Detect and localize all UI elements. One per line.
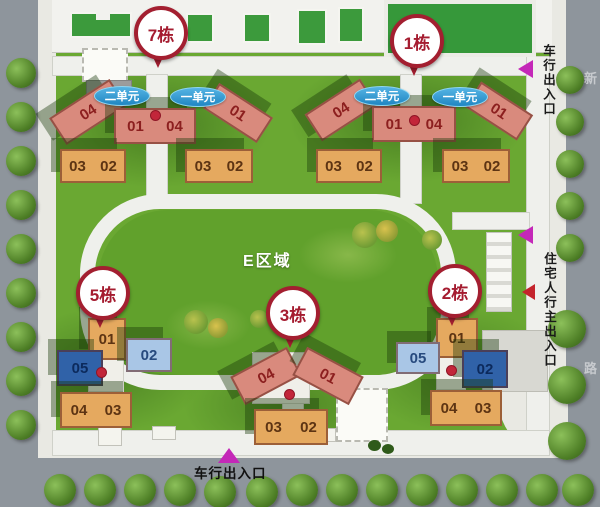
tree-icon xyxy=(548,422,586,460)
tree-icon xyxy=(556,192,584,220)
unit-number: 02 xyxy=(100,158,117,175)
entrance-arrow-icon xyxy=(518,226,533,244)
building-block: 0302 xyxy=(316,149,382,183)
unit-number: 04 xyxy=(71,402,88,419)
unit-number: 02 xyxy=(227,158,244,175)
unit-label-b7-1: 一单元 xyxy=(170,87,226,107)
building-7-marker[interactable]: 7栋 xyxy=(134,6,182,60)
unit-number: 02 xyxy=(484,158,501,175)
tree-icon xyxy=(286,474,318,506)
court-notch xyxy=(96,12,110,20)
tree-icon xyxy=(164,474,196,506)
building-block: 02 xyxy=(462,350,508,388)
court-green xyxy=(297,9,327,45)
unit-number: 05 xyxy=(72,360,89,377)
marker-label: 7栋 xyxy=(148,21,174,46)
unit-number: 01 xyxy=(99,331,116,348)
bush-icon xyxy=(422,230,442,250)
entrance-arrow-icon xyxy=(518,60,533,78)
tree-icon xyxy=(6,278,36,308)
outlined-lot xyxy=(82,48,128,82)
building-block: 0302 xyxy=(442,149,510,183)
building-block: 0302 xyxy=(185,149,253,183)
location-dot xyxy=(446,365,457,376)
building-block: 0302 xyxy=(254,409,328,445)
unit-number: 03 xyxy=(452,158,469,175)
tree-icon xyxy=(526,474,558,506)
bush-icon xyxy=(352,222,378,248)
bush-icon xyxy=(208,318,228,338)
bush-icon xyxy=(184,310,208,334)
unit-number: 02 xyxy=(300,419,317,436)
building-3-marker[interactable]: 3栋 xyxy=(266,286,314,340)
unit-number: 03 xyxy=(265,419,282,436)
unit-number: 01 xyxy=(127,118,144,135)
tree-icon xyxy=(406,474,438,506)
tree-icon xyxy=(562,474,594,506)
location-dot xyxy=(96,367,107,378)
unit-number: 04 xyxy=(255,365,278,388)
tree-icon xyxy=(6,366,36,396)
tree-icon xyxy=(6,190,36,220)
tree-icon xyxy=(84,474,116,506)
unit-number: 03 xyxy=(69,158,86,175)
street-name-char: 新 xyxy=(584,68,597,87)
marker-label: 5栋 xyxy=(90,281,116,306)
bush-icon xyxy=(382,444,394,454)
building-1-marker[interactable]: 1栋 xyxy=(390,14,438,68)
entrance-label-vehicle-bottom: 车行出入口 xyxy=(194,462,267,482)
unit-number: 04 xyxy=(426,116,443,133)
utility-block xyxy=(152,426,176,440)
tree-icon xyxy=(556,108,584,136)
unit-label-b1-1: 一单元 xyxy=(432,87,488,107)
tree-icon xyxy=(6,234,36,264)
unit-number: 01 xyxy=(449,330,466,347)
unit-label-text: 二单元 xyxy=(365,88,400,104)
building-block: 05 xyxy=(57,350,103,386)
location-dot xyxy=(409,115,420,126)
tree-icon xyxy=(326,474,358,506)
unit-label-b7-2: 二单元 xyxy=(94,86,150,106)
bush-icon xyxy=(376,220,398,242)
entrance-gate-lane xyxy=(486,232,512,312)
building-block: 0403 xyxy=(430,390,502,426)
unit-number: 03 xyxy=(105,402,122,419)
unit-number: 01 xyxy=(226,101,249,124)
entrance-arrow-icon xyxy=(522,284,535,300)
tree-icon xyxy=(6,58,36,88)
tree-icon xyxy=(44,474,76,506)
unit-number: 02 xyxy=(356,158,373,175)
entrance-label-pedestrian-right: 住宅人行主出入口 xyxy=(540,252,559,368)
unit-number: 01 xyxy=(487,99,510,122)
building-5-marker[interactable]: 5栋 xyxy=(76,266,124,320)
building-2-marker[interactable]: 2栋 xyxy=(428,264,476,318)
unit-number: 04 xyxy=(166,118,183,135)
unit-number: 04 xyxy=(329,98,352,121)
unit-number: 03 xyxy=(475,400,492,417)
unit-number: 01 xyxy=(317,365,340,388)
building-block: 05 xyxy=(396,342,440,374)
unit-number: 04 xyxy=(441,400,458,417)
area-label: E区域 xyxy=(243,247,292,271)
unit-number: 02 xyxy=(477,361,494,378)
tree-icon xyxy=(556,66,584,94)
unit-number: 05 xyxy=(410,350,427,367)
location-dot xyxy=(150,110,161,121)
tree-icon xyxy=(6,410,36,440)
marker-label: 3栋 xyxy=(280,301,306,326)
unit-number: 03 xyxy=(195,158,212,175)
unit-number: 02 xyxy=(141,347,158,364)
marker-label: 2栋 xyxy=(442,279,468,304)
tree-icon xyxy=(124,474,156,506)
marker-label: 1栋 xyxy=(404,29,430,54)
tree-icon xyxy=(366,474,398,506)
street-name-char: 路 xyxy=(584,358,597,377)
site-plan-map: 二单元 一单元 04 0104 01 0302 0302 7栋 二单元 一单元 … xyxy=(0,0,600,507)
tree-icon xyxy=(6,146,36,176)
tree-icon xyxy=(446,474,478,506)
tree-icon xyxy=(6,102,36,132)
unit-label-b1-2: 二单元 xyxy=(354,86,410,106)
unit-label-text: 二单元 xyxy=(105,88,140,104)
entrance-arrow-icon xyxy=(218,448,240,463)
unit-label-text: 一单元 xyxy=(181,89,216,105)
unit-number: 03 xyxy=(325,158,342,175)
tree-icon xyxy=(486,474,518,506)
bush-icon xyxy=(368,440,381,451)
court-green xyxy=(243,13,271,43)
building-block: 0403 xyxy=(60,392,132,428)
tree-icon xyxy=(548,366,586,404)
unit-number: 04 xyxy=(76,100,99,123)
unit-number: 01 xyxy=(386,116,403,133)
court-green xyxy=(186,13,214,43)
tree-icon xyxy=(556,234,584,262)
unit-label-text: 一单元 xyxy=(443,89,478,105)
tree-icon xyxy=(6,322,36,352)
entrance-label-vehicle-right: 车行出入口 xyxy=(539,44,558,117)
building-block: 02 xyxy=(126,338,172,372)
court-green xyxy=(338,7,364,43)
location-dot xyxy=(284,389,295,400)
building-block: 0302 xyxy=(60,149,126,183)
tree-icon xyxy=(556,150,584,178)
